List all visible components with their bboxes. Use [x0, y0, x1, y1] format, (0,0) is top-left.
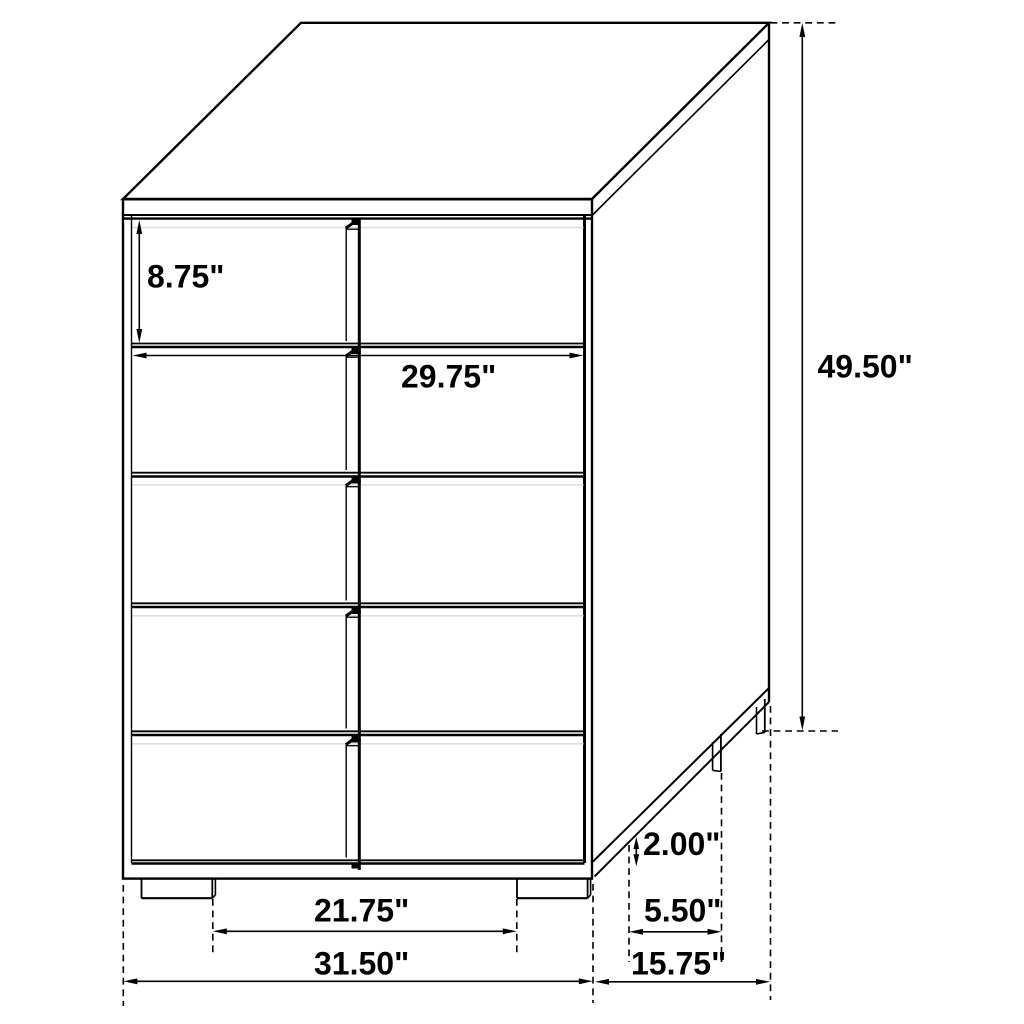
svg-text:2.00": 2.00" — [643, 826, 720, 862]
svg-text:31.50": 31.50" — [314, 946, 409, 982]
svg-text:15.75": 15.75" — [631, 946, 726, 982]
svg-text:8.75": 8.75" — [147, 259, 224, 295]
svg-text:29.75": 29.75" — [401, 359, 496, 395]
svg-text:21.75": 21.75" — [314, 893, 409, 929]
svg-text:49.50": 49.50" — [818, 349, 913, 385]
svg-text:5.50": 5.50" — [644, 893, 721, 929]
